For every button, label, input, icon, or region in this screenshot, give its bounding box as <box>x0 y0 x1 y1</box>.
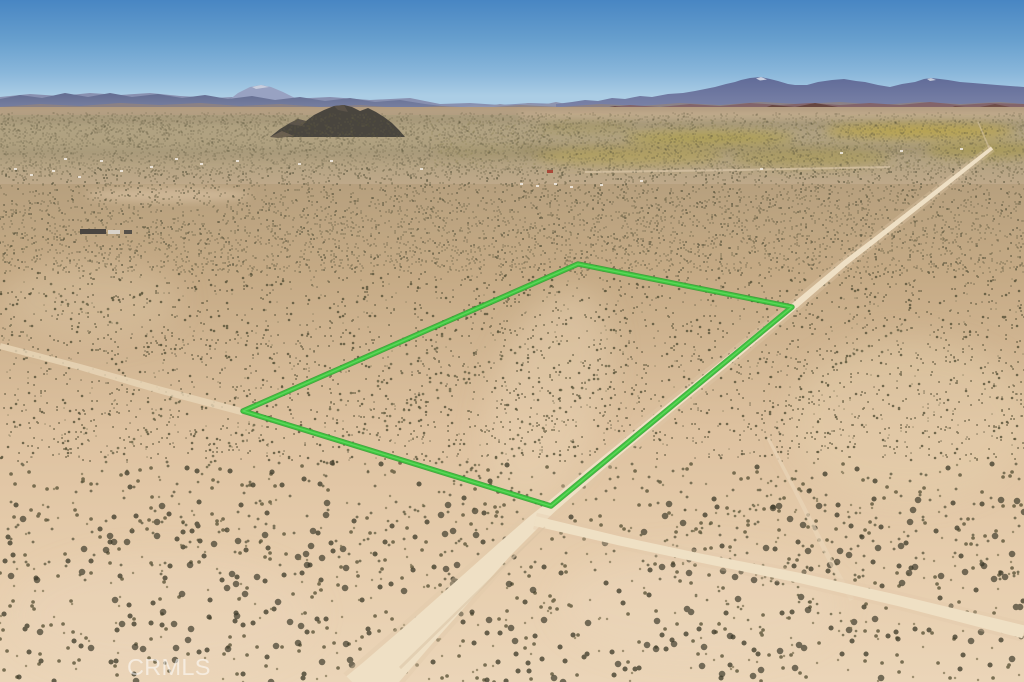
svg-text:CRMLS: CRMLS <box>127 654 211 680</box>
